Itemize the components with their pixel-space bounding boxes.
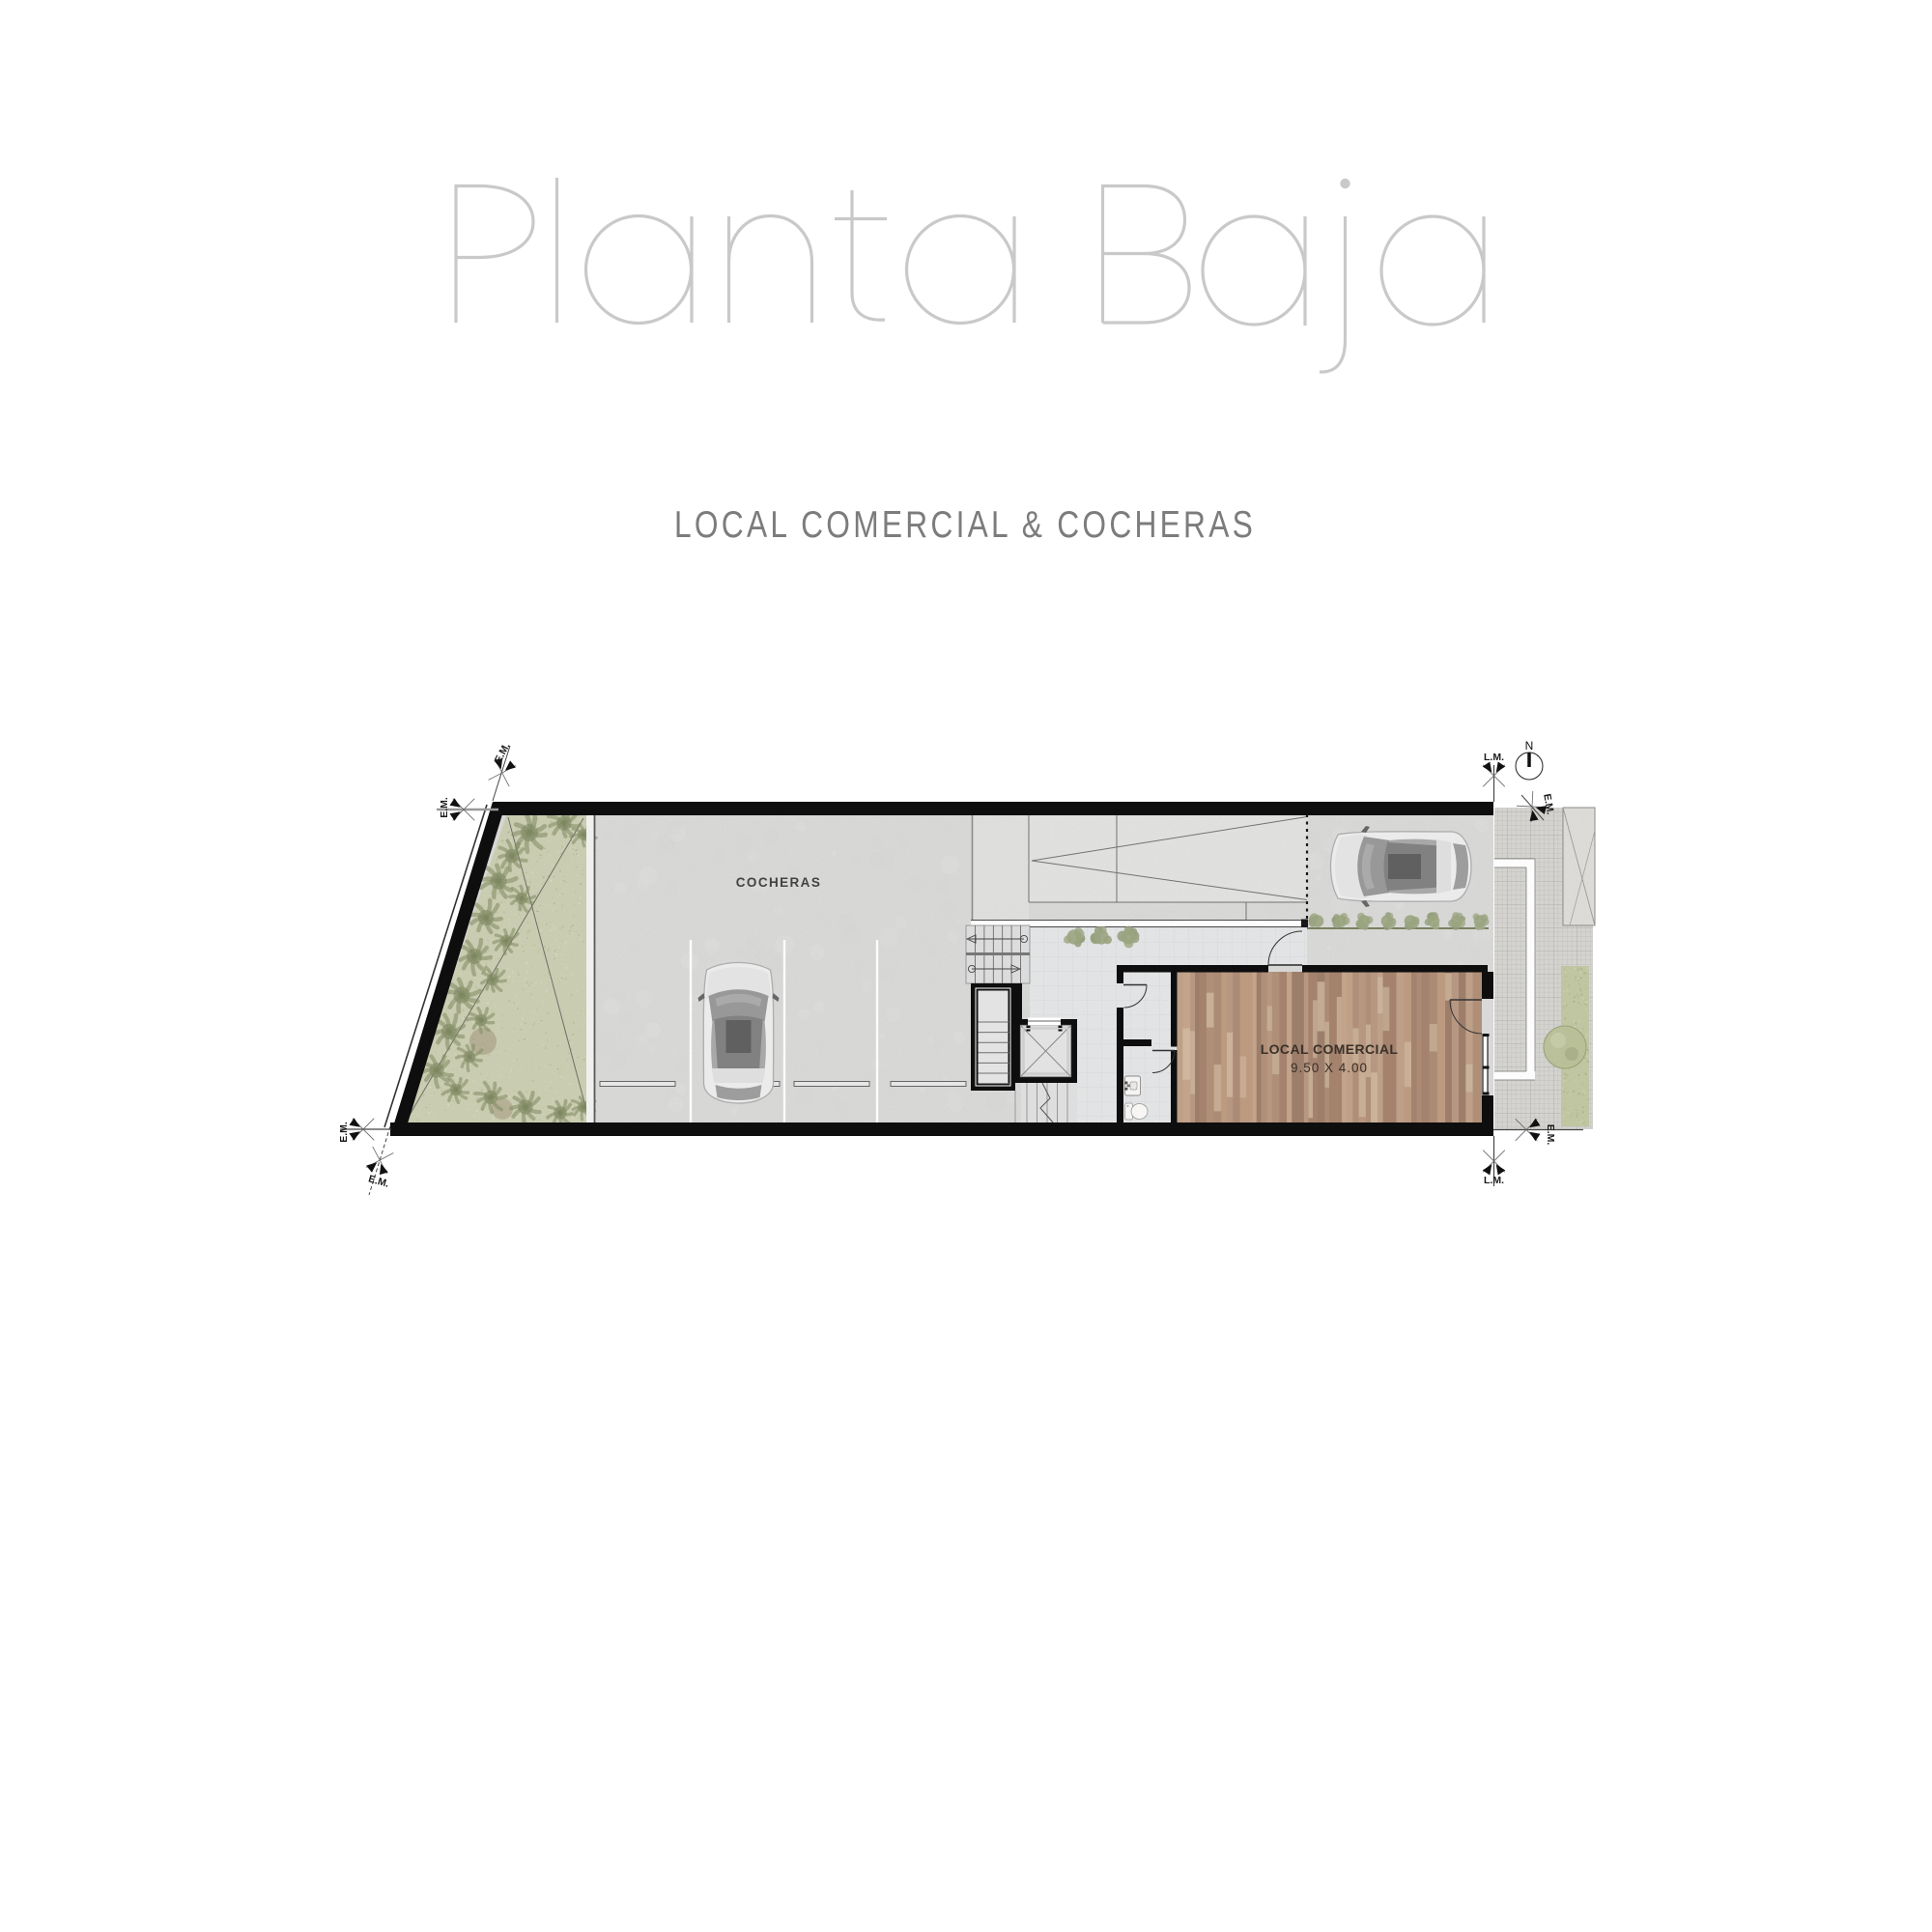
svg-text:E.M.: E.M. (1545, 1124, 1556, 1146)
svg-text:E.M.: E.M. (493, 741, 513, 765)
svg-text:9.50 X 4.00: 9.50 X 4.00 (1291, 1061, 1368, 1075)
svg-text:E.M.: E.M. (338, 1122, 350, 1143)
svg-text:LOCAL COMERCIAL & COCHERAS: LOCAL COMERCIAL & COCHERAS (674, 504, 1256, 546)
svg-text:N: N (1525, 739, 1534, 753)
svg-text:E.M.: E.M. (367, 1173, 390, 1190)
svg-text:L.M.: L.M. (1484, 1175, 1504, 1186)
svg-text:E.M.: E.M. (439, 797, 450, 818)
svg-text:L.M.: L.M. (1484, 752, 1504, 763)
svg-text:LOCAL COMERCIAL: LOCAL COMERCIAL (1261, 1041, 1399, 1057)
